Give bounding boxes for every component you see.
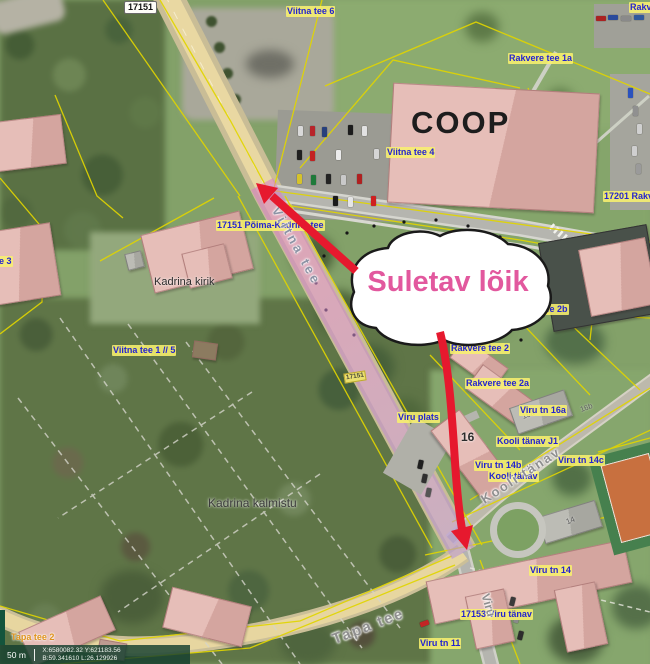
annotation-layer (0, 0, 650, 664)
coordinate-bl: B:59.341610 L:26.129926 (42, 655, 120, 663)
coordinate-readout: X:6580082.32 Y:621183.56 B:59.341610 L:2… (42, 647, 120, 662)
scale-tick (34, 649, 36, 661)
map-canvas[interactable]: COOP Kadrina kirik Kadrina kalmistu 16 1… (0, 0, 650, 664)
closure-arrow-northwest (256, 183, 356, 271)
closure-arrow-south (440, 332, 473, 550)
scale-label: 50 m (7, 650, 26, 660)
map-statusbar: 50 m X:6580082.32 Y:621183.56 B:59.34161… (0, 645, 190, 664)
map-edge-marker (0, 610, 5, 645)
closed-section-callout-label: Suletav lõik (352, 266, 544, 299)
coordinate-xy: X:6580082.32 Y:621183.56 (42, 647, 120, 655)
